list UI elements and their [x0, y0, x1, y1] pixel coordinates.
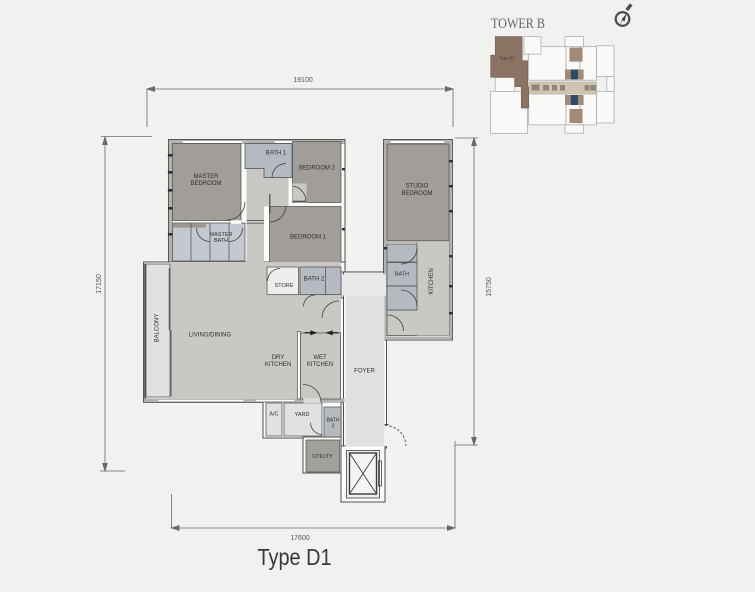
- svg-text:17150: 17150: [96, 274, 103, 294]
- svg-text:BATH: BATH: [214, 238, 228, 244]
- svg-text:17600: 17600: [290, 535, 310, 542]
- svg-text:BEDROOM: BEDROOM: [190, 181, 221, 187]
- svg-text:A/C: A/C: [269, 412, 278, 418]
- svg-text:BATH 1: BATH 1: [266, 151, 287, 157]
- svg-text:BATH: BATH: [395, 272, 409, 278]
- svg-text:BEDROOM: BEDROOM: [401, 191, 432, 197]
- svg-text:LIVING/DINING: LIVING/DINING: [189, 333, 232, 339]
- svg-text:15750: 15750: [486, 277, 493, 297]
- svg-text:MASTER: MASTER: [193, 174, 219, 180]
- svg-text:19100: 19100: [293, 77, 313, 84]
- svg-text:UTILITY: UTILITY: [312, 454, 333, 460]
- svg-text:BALCONY: BALCONY: [155, 314, 161, 343]
- svg-text:Type D1: Type D1: [258, 544, 332, 570]
- svg-text:STORE: STORE: [275, 283, 294, 289]
- svg-text:YARD: YARD: [295, 412, 310, 418]
- svg-text:3: 3: [332, 424, 335, 430]
- svg-text:Type D1: Type D1: [499, 56, 515, 61]
- svg-text:DRY: DRY: [272, 355, 285, 361]
- svg-text:FOYER: FOYER: [354, 369, 375, 375]
- svg-text:BEDROOM 1: BEDROOM 1: [290, 235, 327, 241]
- svg-text:KITCHEN: KITCHEN: [265, 362, 291, 368]
- svg-text:KITCHEN: KITCHEN: [429, 268, 435, 294]
- svg-text:KITCHEN: KITCHEN: [307, 362, 333, 368]
- svg-text:BATH 2: BATH 2: [304, 277, 325, 283]
- svg-text:WET: WET: [313, 355, 327, 361]
- svg-text:TOWER B: TOWER B: [491, 16, 545, 32]
- svg-text:BEDROOM 2: BEDROOM 2: [299, 166, 336, 172]
- svg-text:STUDIO: STUDIO: [406, 184, 429, 190]
